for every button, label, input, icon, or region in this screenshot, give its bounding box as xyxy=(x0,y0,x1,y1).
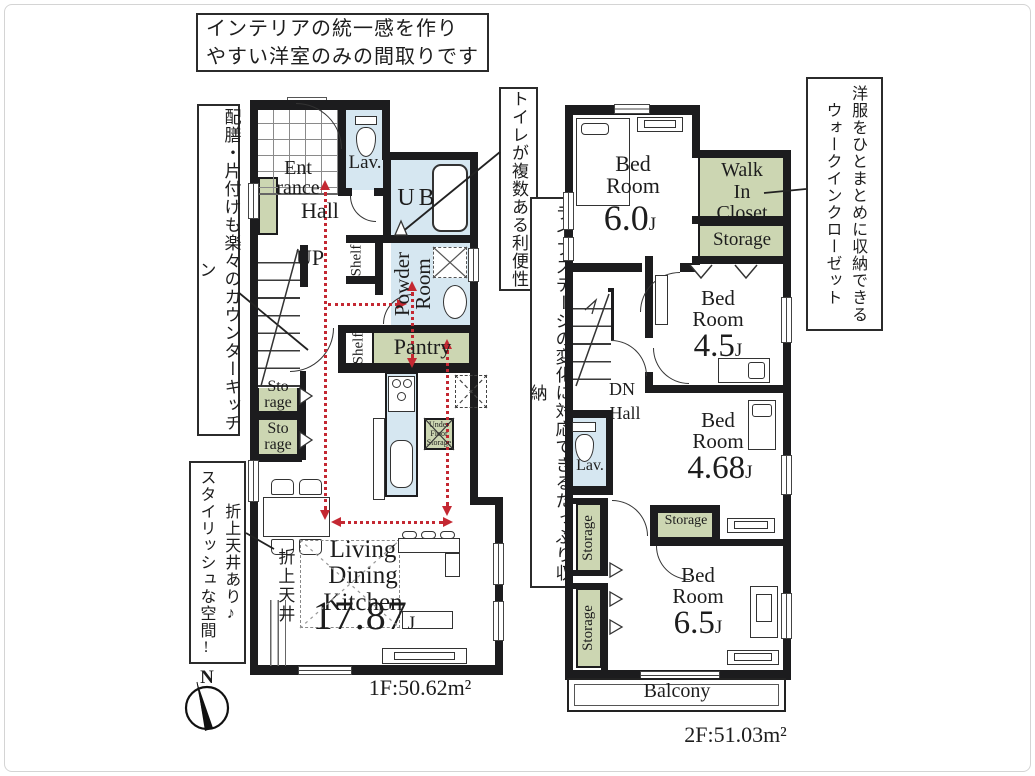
wall xyxy=(495,497,503,673)
label-storage1-1f: Sto rage xyxy=(258,379,298,412)
label-storage2-1f: Sto rage xyxy=(258,421,298,454)
window xyxy=(248,183,259,219)
tv xyxy=(394,652,455,660)
note-interior-line1: インテリアの統一感を作り xyxy=(206,15,479,43)
stairs-2f xyxy=(573,292,611,388)
label-bed3-l1: Bed xyxy=(680,410,756,431)
window xyxy=(493,543,504,585)
wall xyxy=(382,100,390,160)
fridge-space xyxy=(455,375,487,408)
label-ldk-size: 17.87J xyxy=(296,596,432,637)
label-pantry: Pantry xyxy=(385,336,460,358)
label-entrance: Ent rance xyxy=(268,158,328,199)
window xyxy=(781,297,792,343)
label-bed3-size: 4.68J xyxy=(672,452,768,486)
label-ldk-unit: J xyxy=(408,613,415,634)
wall xyxy=(250,100,390,110)
note-interior: インテリアの統一感を作り やすい洋室のみの間取りです xyxy=(196,13,489,72)
label-ldk-l1: Living xyxy=(303,537,423,563)
note-counter-kitchen-text: 配膳・片付けも楽々のカウンターキッチン xyxy=(194,106,244,434)
flow-arrow-left xyxy=(331,517,341,527)
wall xyxy=(601,498,608,575)
wall xyxy=(338,188,352,196)
note-raised-ceiling: 折上天井あり♪ スタイリッシュな空間! xyxy=(189,461,246,664)
window xyxy=(781,593,792,639)
fold-door-marker xyxy=(610,563,622,577)
wall xyxy=(680,263,700,272)
label-bed2-size: 4.5J xyxy=(675,330,761,364)
label-wic-l2: In xyxy=(700,182,784,204)
sink-oval xyxy=(443,285,467,319)
label-storage1-l1: Sto xyxy=(258,379,298,395)
lav-door-arc xyxy=(350,196,376,222)
label-bed2-unit: J xyxy=(735,340,742,361)
bed2-door-arc xyxy=(611,340,647,376)
label-lav-2f: Lav. xyxy=(570,458,610,474)
note-raised-ceiling-col1: 折上天井あり♪ xyxy=(222,503,239,623)
stove-burner xyxy=(392,379,401,388)
note-walk-in-closet: 洋服をひとまとめに収納できる ウォークインクローゼット xyxy=(806,77,883,331)
window-slider xyxy=(655,275,668,325)
label-storage-v2: Storage xyxy=(580,590,598,666)
wall xyxy=(383,152,478,160)
label-bed1-num: 6.0 xyxy=(604,198,649,238)
note-interior-line2: やすい洋室のみの間取りです xyxy=(206,43,479,71)
label-storage-top: Storage xyxy=(700,230,784,249)
wall xyxy=(692,150,791,158)
label-ldk-l2: Dining xyxy=(303,563,423,589)
label-bed3-unit: J xyxy=(745,462,752,483)
label-bed4-num: 6.5 xyxy=(674,605,715,641)
flow-arrow-down xyxy=(442,506,452,516)
label-bed1-unit: J xyxy=(649,214,656,235)
bed4-door-arc xyxy=(612,500,648,536)
stool xyxy=(421,531,436,539)
flow-arrow-right xyxy=(443,517,453,527)
fold-door-marker xyxy=(610,592,622,606)
label-powder-l2: Room xyxy=(413,252,434,316)
note-counter-kitchen: 配膳・片付けも楽々のカウンターキッチン xyxy=(197,104,240,436)
chair xyxy=(271,479,294,495)
flow-arrow-down xyxy=(320,510,330,520)
kitchen-sink xyxy=(390,440,413,488)
wall xyxy=(250,413,302,418)
compass-n-label: N xyxy=(193,668,221,687)
sliding-door xyxy=(298,666,352,675)
window xyxy=(493,601,504,641)
label-entrance-l2: rance xyxy=(268,178,328,198)
label-storage-mid: Storage xyxy=(658,514,714,528)
hall-ldk-door-arc xyxy=(290,328,334,372)
flow-arrow-down xyxy=(407,358,417,368)
label-hall-2f: Hall xyxy=(600,404,650,422)
stove-burner xyxy=(397,392,406,401)
label-bed3: Bed Room xyxy=(680,410,756,453)
desk-inner xyxy=(756,594,772,622)
flow-line xyxy=(341,521,443,524)
ac-unit-inner xyxy=(644,120,676,128)
flow-line xyxy=(324,192,327,510)
label-bed1-l2: Room xyxy=(593,175,673,197)
compass-circle xyxy=(186,687,228,729)
label-wic-l3: Closet xyxy=(700,203,784,225)
label-balcony: Balcony xyxy=(636,681,718,701)
label-lav-1f: Lav. xyxy=(344,153,386,172)
window xyxy=(614,104,650,114)
wall xyxy=(650,539,720,546)
window xyxy=(248,460,259,502)
window xyxy=(781,455,792,495)
label-ldk-num: 17.87 xyxy=(313,593,408,638)
label-storage2-l2: rage xyxy=(258,437,298,453)
label-bed3-num: 4.68 xyxy=(687,450,745,486)
window xyxy=(563,192,574,230)
window xyxy=(468,248,479,282)
label-under-floor-l3: Storage xyxy=(424,439,454,448)
floor-plan-page: インテリアの統一感を作り やすい洋室のみの間取りです 配膳・片付けも楽々のカウン… xyxy=(0,0,1035,776)
label-bed4: Bed Room xyxy=(660,565,736,608)
counter-edge xyxy=(373,418,385,500)
stove-burner xyxy=(403,379,412,388)
label-1f-area: 1F:50.62m² xyxy=(365,677,475,699)
label-orikami-ceiling: 折上天井 xyxy=(276,548,293,624)
wall xyxy=(250,665,503,675)
wall xyxy=(645,385,791,393)
window xyxy=(563,237,574,261)
label-entrance-l1: Ent xyxy=(268,158,328,178)
label-dn: DN xyxy=(600,380,644,398)
counter-return xyxy=(445,553,460,577)
closet-chevron xyxy=(735,265,757,278)
label-shelf2: Shelf xyxy=(351,326,368,372)
label-under-floor: Under Floor Storage xyxy=(424,421,454,447)
label-ub: UB xyxy=(390,186,446,210)
label-hall-1f: Hall xyxy=(290,200,350,222)
wall xyxy=(692,256,791,264)
stool xyxy=(440,531,455,539)
label-wic: Walk In Closet xyxy=(700,160,784,225)
wall xyxy=(375,243,383,295)
chair xyxy=(299,479,322,495)
pillow xyxy=(748,362,765,379)
toilet-tank-2f xyxy=(572,422,596,432)
note-wic-col2: ウォークインクローゼット xyxy=(824,102,841,306)
label-powder-l1: Powder xyxy=(392,252,413,316)
note-raised-ceiling-col2: スタイリッシュな空間! xyxy=(198,469,215,657)
toilet-tank-1f xyxy=(355,116,377,125)
wall xyxy=(650,505,720,511)
label-bed4-l1: Bed xyxy=(660,565,736,586)
compass-needle-line xyxy=(197,682,206,730)
fold-door-marker xyxy=(610,620,622,634)
label-bed1: Bed Room xyxy=(593,153,673,198)
label-bed2: Bed Room xyxy=(680,288,756,331)
ac-unit-inner xyxy=(734,521,768,529)
ac-unit-inner xyxy=(734,653,772,661)
wall xyxy=(565,263,642,272)
label-bed4-size: 6.5J xyxy=(655,607,741,641)
label-wic-l1: Walk xyxy=(700,160,784,182)
label-bed4-unit: J xyxy=(715,617,722,638)
wall xyxy=(573,488,613,495)
label-bed2-num: 4.5 xyxy=(694,328,735,364)
note-wic-col1: 洋服をひとまとめに収納できる xyxy=(849,85,866,323)
wall xyxy=(601,583,608,673)
label-storage1-l2: rage xyxy=(258,395,298,411)
label-storage2-l1: Sto xyxy=(258,421,298,437)
compass-needle xyxy=(197,682,213,731)
label-storage-v1: Storage xyxy=(580,503,598,573)
label-bed1-l1: Bed xyxy=(593,153,673,175)
label-bed1-size: 6.0J xyxy=(585,200,675,237)
label-up: UP xyxy=(285,247,335,269)
wall xyxy=(650,505,656,546)
pillow xyxy=(581,123,609,135)
label-powder-room: Powder Room xyxy=(387,239,439,329)
wall xyxy=(714,539,791,546)
label-shelf1: Shelf xyxy=(349,238,366,284)
label-bed2-l1: Bed xyxy=(680,288,756,309)
label-2f-area: 2F:51.03m² xyxy=(678,724,793,746)
